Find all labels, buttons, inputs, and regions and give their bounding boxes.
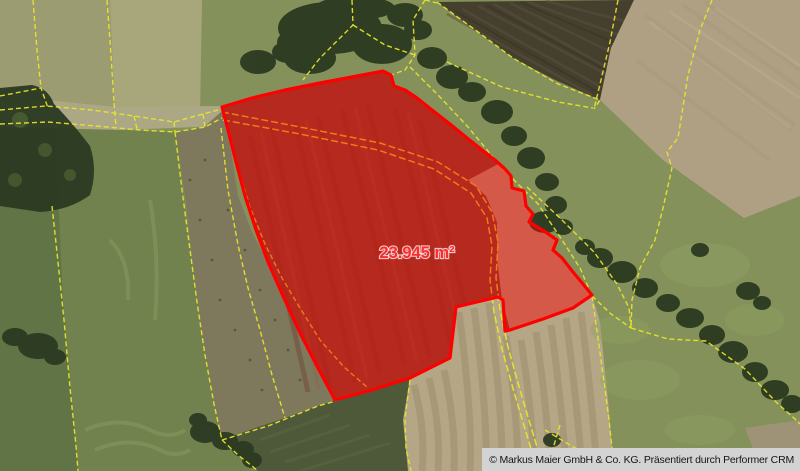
parcel-area-label: 23.945 m² bbox=[379, 244, 455, 262]
attribution-text: © Markus Maier GmbH & Co. KG. Präsentier… bbox=[489, 454, 794, 466]
map-canvas[interactable]: 23.945 m² © Markus Maier GmbH & Co. KG. … bbox=[0, 0, 800, 471]
satellite-map: 23.945 m² bbox=[0, 0, 800, 471]
attribution-bar: © Markus Maier GmbH & Co. KG. Präsentier… bbox=[482, 448, 800, 471]
